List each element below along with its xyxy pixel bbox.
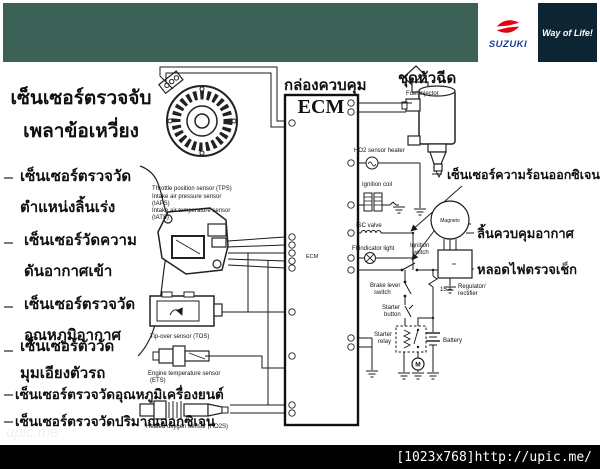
- isc-valve-label: ISC valve: [356, 223, 382, 229]
- slide-page: SUZUKI Way of Life!: [0, 0, 600, 469]
- ignition-switch-label-2: switch: [412, 250, 429, 256]
- ignition-coil-label: Ignition coil: [362, 182, 392, 188]
- item-line: มุมเอียงตัวรถ: [20, 361, 114, 388]
- panel-title-line2: เพลาข้อเหวี่ยง: [6, 115, 156, 148]
- iats-label-1: Intake air temperature sensor: [152, 208, 230, 214]
- sensor-item-tipover: เซ็นเซอร์ตัววัด มุมเอียงตัวรถ: [20, 334, 114, 388]
- item-line: เซ็นเซอร์ตัววัด: [20, 334, 114, 361]
- sensor-item-throttle: เซ็นเซอร์ตรวจวัด ตำแหน่งลิ้นเร่ง: [20, 162, 131, 224]
- ecm-thai-label: กล่องควบคุม: [284, 77, 367, 95]
- item-line: ตำแหน่งลิ้นเร่ง: [20, 193, 131, 224]
- tos-label: Tip-over sensor (TOS): [150, 334, 209, 340]
- check-light-thai-label: หลอดไฟตรวจเช็ก: [477, 260, 577, 277]
- item-line: เซ็นเซอร์ตรวจวัด: [20, 162, 131, 193]
- item-line: เซ็นเซอร์ตรวจวัด: [24, 290, 135, 321]
- watermark-text: [1023x768]http://upic.me/: [396, 450, 600, 465]
- ets-label-1: Engine temperature sensor: [148, 371, 220, 377]
- ecm-title: ECM: [298, 96, 345, 118]
- fi-light-label: FI indicator light: [352, 246, 395, 252]
- iaps-label-1: Intake air pressure sensor: [152, 194, 221, 200]
- ho2-heater-label: HO2 sensor heater: [354, 148, 405, 154]
- sensor-item-enginetemp: เซ็นเซอร์ตรวจวัดอุณหภูมิเครื่องยนต์: [15, 385, 224, 405]
- item-line: ดันอากาศเข้า: [24, 257, 137, 288]
- panel-title-line1: เซ็นเซอร์ตรวจจับ: [6, 82, 156, 115]
- regulator-label-2: rectifier: [458, 291, 478, 297]
- tip-over-sensor-drawing: [150, 292, 222, 326]
- starter-button-label-2: button: [384, 312, 401, 318]
- ignition-switch-label-1: Ignition: [410, 243, 429, 249]
- magneto-label: Magneto: [440, 218, 460, 224]
- circuit-components: [364, 157, 472, 379]
- panel-title: เซ็นเซอร์ตรวจจับ เพลาข้อเหวี่ยง: [6, 82, 156, 148]
- brake-switch-label-2: switch: [374, 290, 391, 296]
- ets-label-2: (ETS): [150, 378, 166, 384]
- o2-heat-thai-label: เซ็นเซอร์ความร้อนออกซิเจน: [447, 167, 600, 182]
- ecm-small-label: ECM: [306, 254, 319, 260]
- brake-switch-label-1: Brake lever: [370, 283, 400, 289]
- iats-label-2: (IATS): [152, 215, 169, 221]
- item-line: เซ็นเซอร์วัดความ: [24, 226, 137, 257]
- ghost-watermark: upic.me: [6, 424, 59, 441]
- ecm-box: [285, 95, 358, 425]
- fuse-label: 15 A: [440, 287, 452, 293]
- injector-thai-label: ชุดหัวฉีด: [398, 70, 456, 88]
- air-valve-thai-label: ลิ้นควบคุมอากาศ: [477, 223, 575, 242]
- battery-label: Battery: [443, 338, 462, 344]
- starter-relay-label-2: relay: [378, 339, 391, 345]
- injector-en-label: Fuel injector: [406, 91, 439, 97]
- footer-bar: [1023x768]http://upic.me/: [0, 445, 600, 469]
- iaps-label-2: (IAPS): [152, 201, 170, 207]
- tps-label: Throttle position sensor (TPS): [152, 186, 232, 192]
- crank-sensor-drawing: [159, 71, 237, 156]
- sensor-item-pressure: เซ็นเซอร์วัดความ ดันอากาศเข้า: [24, 226, 137, 288]
- regulator-label-1: Regulator/: [458, 284, 486, 290]
- motor-label: M: [415, 362, 420, 369]
- item-line: เซ็นเซอร์ตรวจวัดอุณหภูมิเครื่องยนต์: [15, 385, 224, 405]
- starter-button-label-1: Starter: [382, 305, 400, 311]
- engine-temp-sensor-drawing: [153, 346, 209, 366]
- starter-relay-label-1: Starter: [374, 332, 392, 338]
